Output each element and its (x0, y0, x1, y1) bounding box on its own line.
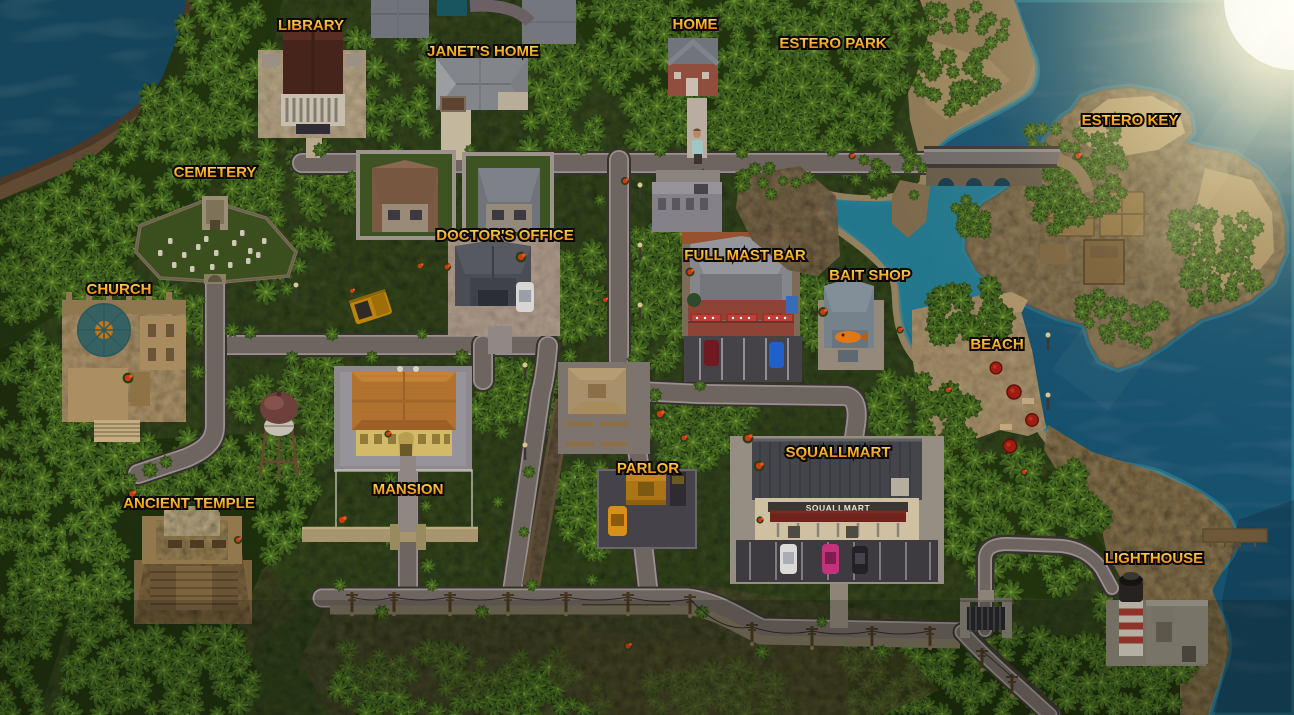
svg-text:DOCTOR'S OFFICE: DOCTOR'S OFFICE (436, 227, 573, 244)
svg-text:HOME: HOME (673, 16, 718, 33)
svg-text:BEACH: BEACH (970, 336, 1023, 353)
svg-text:BAIT SHOP: BAIT SHOP (829, 267, 911, 284)
svg-text:ESTERO KEY: ESTERO KEY (1082, 112, 1179, 129)
svg-text:MANSION: MANSION (373, 481, 444, 498)
svg-text:CEMETERY: CEMETERY (174, 164, 257, 181)
svg-text:FULL MAST BAR: FULL MAST BAR (684, 247, 806, 264)
svg-text:ANCIENT TEMPLE: ANCIENT TEMPLE (123, 495, 255, 512)
svg-text:PARLOR: PARLOR (617, 460, 679, 477)
svg-text:LIGHTHOUSE: LIGHTHOUSE (1105, 550, 1203, 567)
svg-text:CHURCH: CHURCH (87, 281, 152, 298)
svg-text:JANET'S HOME: JANET'S HOME (427, 43, 539, 60)
svg-text:ESTERO PARK: ESTERO PARK (779, 35, 886, 52)
svg-text:LIBRARY: LIBRARY (278, 17, 344, 34)
svg-text:SQUALLMART: SQUALLMART (786, 444, 891, 461)
